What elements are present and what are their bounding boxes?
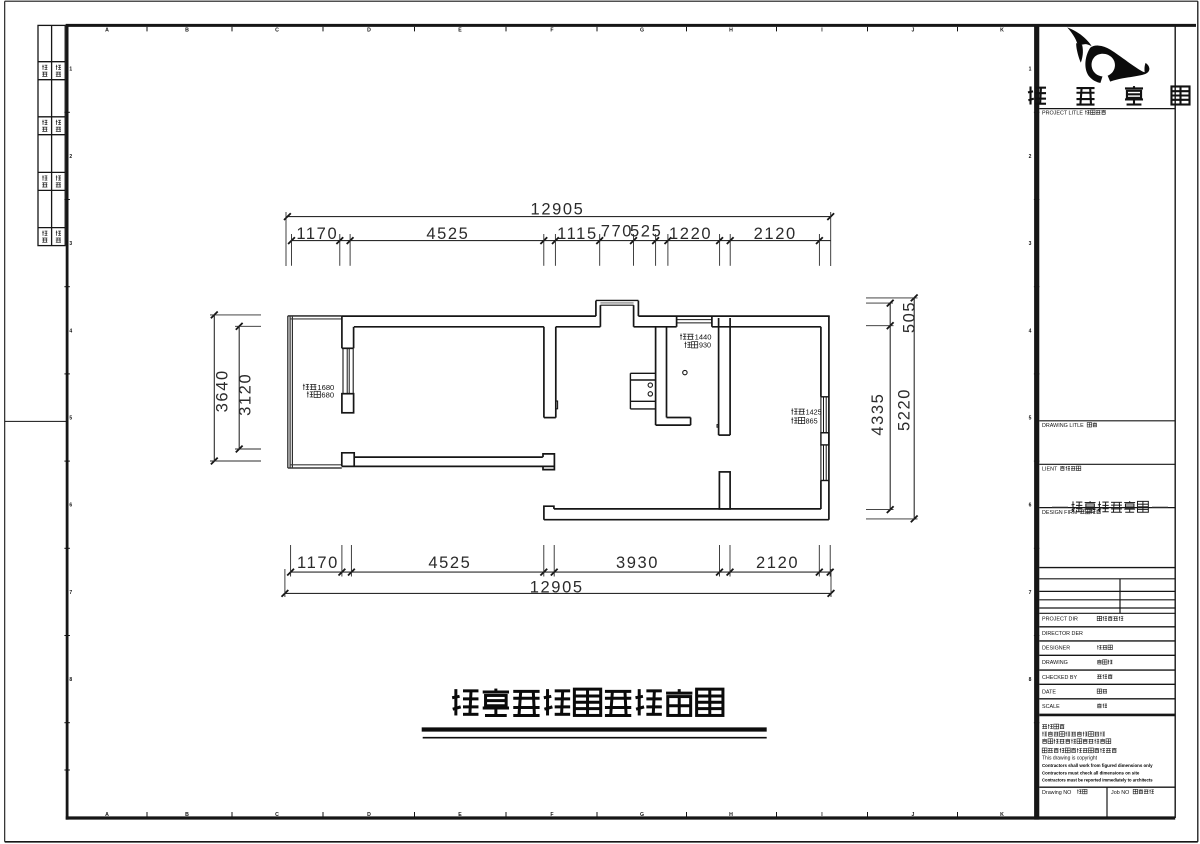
svg-text:Contractors must be reported i: Contractors must be reported immediately… [1042,777,1153,782]
svg-text:12905: 12905 [531,200,585,218]
svg-text:J: J [912,28,915,34]
svg-text:C: C [275,28,279,34]
svg-text:4: 4 [1029,328,1032,334]
svg-text:E: E [458,812,462,818]
svg-text:680: 680 [321,390,334,399]
svg-text:1425: 1425 [806,407,822,416]
svg-text:8: 8 [69,677,72,683]
svg-text:2: 2 [1029,154,1032,160]
svg-text:4: 4 [69,328,72,334]
svg-text:3: 3 [1029,241,1032,247]
svg-text:This drawing is copyright: This drawing is copyright [1042,756,1098,762]
svg-text:2: 2 [69,154,72,160]
svg-text:8: 8 [1029,677,1032,683]
svg-text:K: K [1000,812,1004,818]
svg-text:LIENT: LIENT [1042,467,1058,473]
svg-text:C: C [275,812,279,818]
svg-text:7: 7 [69,590,72,596]
svg-text:Contractors shall work from fi: Contractors shall work from figured dime… [1042,763,1153,768]
svg-text:DESIGN FIRM: DESIGN FIRM [1042,510,1078,516]
svg-text:DRAWING: DRAWING [1042,660,1068,666]
svg-text:E: E [458,28,462,34]
svg-text:CHECKED BY: CHECKED BY [1042,675,1077,681]
svg-text:5220: 5220 [895,388,913,431]
svg-text:3930: 3930 [616,554,659,572]
svg-text:D: D [367,28,371,34]
svg-text:5: 5 [69,416,72,422]
svg-text:1170: 1170 [297,554,339,572]
svg-text:K: K [1000,28,1004,34]
svg-text:Drawing NO: Drawing NO [1042,790,1071,796]
svg-text:H: H [729,28,733,34]
svg-text:DESIGNER: DESIGNER [1042,646,1070,652]
svg-text:J: J [912,812,915,818]
svg-text:B: B [185,28,189,34]
svg-text:F: F [550,812,553,818]
svg-text:1115: 1115 [557,225,598,243]
svg-text:6: 6 [69,503,72,509]
svg-text:865: 865 [806,416,818,425]
svg-text:3120: 3120 [236,373,254,416]
svg-text:1170: 1170 [296,225,338,243]
svg-text:DRAWING LITLE: DRAWING LITLE [1042,423,1084,429]
svg-text:4525: 4525 [428,554,471,572]
svg-text:505: 505 [901,301,919,333]
svg-text:525: 525 [630,222,662,240]
svg-text:B: B [185,812,189,818]
svg-text:12905: 12905 [530,579,584,597]
svg-text:1: 1 [69,67,72,73]
svg-text:Job NO: Job NO [1111,790,1129,796]
svg-text:G: G [640,28,644,34]
svg-text:770: 770 [601,222,633,240]
svg-text:D: D [367,812,371,818]
svg-text:H: H [729,812,733,818]
svg-text:Contractors must check all dim: Contractors must check all dimensions on… [1042,770,1140,775]
svg-text:PROJECT LITLE: PROJECT LITLE [1042,111,1083,117]
svg-text:1: 1 [1029,67,1032,73]
svg-text:DATE: DATE [1042,689,1056,695]
svg-text:A: A [105,812,109,818]
svg-text:G: G [640,812,644,818]
svg-text:5: 5 [1029,416,1032,422]
svg-text:1220: 1220 [669,225,712,243]
svg-text:2120: 2120 [754,225,797,243]
svg-text:PROJECT DIR: PROJECT DIR [1042,617,1078,623]
svg-text:4525: 4525 [426,225,469,243]
svg-text:2120: 2120 [756,554,799,572]
svg-text:A: A [105,28,109,34]
svg-text:4335: 4335 [869,393,887,436]
svg-text:3640: 3640 [214,369,232,412]
svg-text:3: 3 [69,241,72,247]
svg-text:6: 6 [1029,503,1032,509]
svg-text:SCALE: SCALE [1042,704,1060,710]
svg-text:7: 7 [1029,590,1032,596]
svg-text:930: 930 [699,341,711,350]
svg-text:F: F [550,28,553,34]
svg-text:DIRECTOR DER: DIRECTOR DER [1042,631,1083,637]
